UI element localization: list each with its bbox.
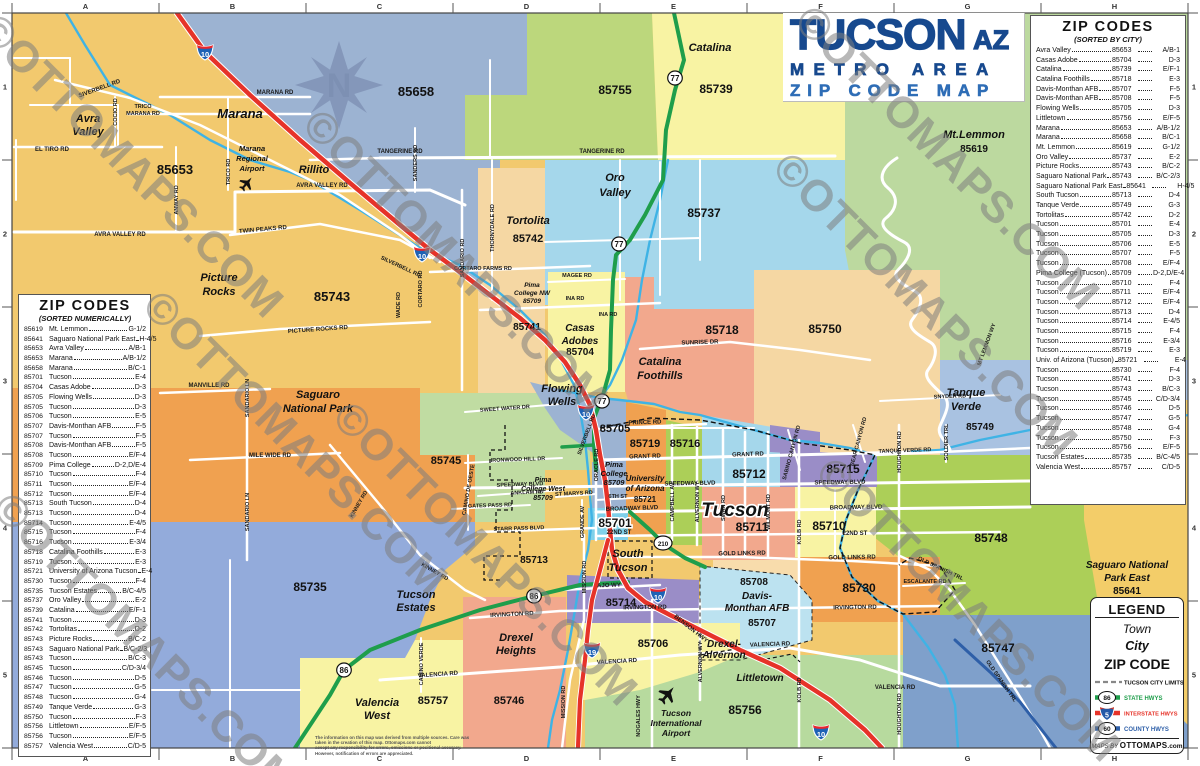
svg-text:10: 10 — [201, 50, 209, 59]
svg-text:Valley: Valley — [599, 187, 631, 199]
svg-text:77: 77 — [671, 74, 680, 83]
svg-text:10: 10 — [654, 593, 662, 602]
svg-text:GOLD LINKS RD: GOLD LINKS RD — [718, 551, 766, 558]
svg-text:MISSION RD: MISSION RD — [561, 686, 567, 719]
svg-text:E: E — [671, 754, 676, 763]
svg-text:C: C — [377, 2, 383, 11]
svg-text:MARANA RD: MARANA RD — [257, 90, 294, 96]
svg-text:3: 3 — [3, 377, 7, 386]
svg-text:Casas: Casas — [565, 323, 595, 334]
svg-text:85730: 85730 — [842, 581, 876, 595]
svg-text:F: F — [818, 754, 823, 763]
svg-text:85749: 85749 — [966, 422, 994, 433]
svg-text:D: D — [524, 754, 530, 763]
svg-text:Airport: Airport — [661, 728, 692, 738]
svg-text:AJO WY: AJO WY — [597, 583, 621, 590]
svg-text:86: 86 — [1103, 695, 1111, 702]
svg-text:H: H — [1112, 2, 1117, 11]
svg-text:SNYDER RD: SNYDER RD — [934, 393, 967, 400]
svg-text:85743: 85743 — [314, 289, 350, 304]
svg-text:85706: 85706 — [638, 638, 669, 650]
svg-text:HOUGHTON RD: HOUGHTON RD — [897, 431, 903, 472]
svg-text:Marana: Marana — [239, 144, 265, 153]
svg-text:85641: 85641 — [1113, 586, 1141, 597]
svg-text:85742: 85742 — [513, 233, 544, 245]
svg-text:ORACLE RD: ORACLE RD — [594, 449, 600, 482]
svg-text:STATE HWYS: STATE HWYS — [1124, 696, 1162, 702]
svg-text:Alvernon: Alvernon — [701, 650, 745, 661]
svg-text:College: College — [600, 469, 627, 478]
svg-text:MAGEE RD: MAGEE RD — [562, 273, 592, 279]
svg-text:ANKLAM RD: ANKLAM RD — [510, 489, 544, 496]
svg-text:85719: 85719 — [630, 438, 661, 450]
svg-text:Verde: Verde — [951, 401, 981, 413]
svg-text:85701: 85701 — [598, 516, 632, 530]
svg-text:ALVERNON WY: ALVERNON WY — [695, 481, 701, 522]
svg-text:SOLDIER TRL: SOLDIER TRL — [944, 423, 950, 460]
svg-text:N: N — [327, 67, 352, 105]
svg-text:85709: 85709 — [604, 478, 626, 487]
svg-text:210: 210 — [658, 541, 669, 548]
svg-text:85746: 85746 — [494, 695, 525, 707]
svg-text:THORNYDALE RD: THORNYDALE RD — [490, 204, 496, 252]
svg-text:of Arizona: of Arizona — [626, 484, 665, 493]
svg-text:2: 2 — [3, 230, 7, 239]
svg-text:Saguaro National: Saguaro National — [1086, 560, 1168, 571]
svg-text:University: University — [626, 474, 665, 483]
svg-text:South: South — [612, 548, 643, 560]
svg-text:SANDARIO LN: SANDARIO LN — [245, 493, 251, 531]
svg-text:AVRA VALLEY RD: AVRA VALLEY RD — [94, 232, 146, 238]
svg-text:SANDERS RD: SANDERS RD — [413, 145, 419, 181]
svg-text:SWAN RD: SWAN RD — [721, 495, 727, 521]
svg-text:85658: 85658 — [398, 84, 434, 99]
svg-text:85745: 85745 — [431, 455, 462, 467]
svg-text:E: E — [671, 2, 676, 11]
svg-text:85735: 85735 — [293, 580, 327, 594]
svg-text:Monthan AFB: Monthan AFB — [725, 603, 790, 614]
svg-text:CAMINO VERDE: CAMINO VERDE — [419, 642, 425, 685]
svg-text:Tortolita: Tortolita — [506, 215, 550, 227]
svg-text:85750: 85750 — [808, 322, 842, 336]
svg-text:Catalina: Catalina — [639, 356, 682, 368]
svg-text:6TH ST: 6TH ST — [609, 494, 629, 500]
svg-text:77: 77 — [615, 240, 624, 249]
svg-text:Regional: Regional — [236, 154, 269, 163]
svg-text:EL TIRO RD: EL TIRO RD — [35, 147, 70, 153]
svg-text:Pima: Pima — [524, 282, 540, 289]
svg-text:85739: 85739 — [699, 82, 733, 96]
svg-text:85712: 85712 — [732, 467, 766, 481]
svg-text:GRANT RD: GRANT RD — [732, 451, 765, 458]
svg-text:Saguaro: Saguaro — [296, 389, 340, 401]
svg-text:D: D — [524, 2, 530, 11]
svg-text:1: 1 — [1192, 83, 1196, 92]
svg-text:85757: 85757 — [418, 695, 449, 707]
svg-text:5: 5 — [3, 671, 7, 680]
svg-text:GRANT RD: GRANT RD — [629, 453, 662, 460]
svg-text:INA RD: INA RD — [566, 296, 585, 302]
svg-text:85707: 85707 — [748, 618, 776, 629]
svg-text:GRANDE AV: GRANDE AV — [580, 505, 586, 538]
svg-text:85716: 85716 — [670, 438, 701, 450]
svg-text:85737: 85737 — [687, 206, 721, 220]
svg-text:85711: 85711 — [736, 520, 769, 534]
svg-text:Tucson: Tucson — [701, 500, 768, 521]
svg-text:TRICO RD: TRICO RD — [226, 159, 232, 186]
svg-text:VALENCIA RD: VALENCIA RD — [875, 685, 916, 691]
svg-text:2: 2 — [1192, 230, 1196, 239]
svg-text:Tucson: Tucson — [609, 562, 648, 574]
svg-text:Tucson: Tucson — [661, 708, 691, 718]
svg-text:G: G — [965, 2, 971, 11]
svg-text:ALVERNON WY: ALVERNON WY — [698, 641, 704, 682]
svg-text:Marana: Marana — [217, 106, 263, 121]
svg-text:85756: 85756 — [728, 703, 762, 717]
svg-text:85709: 85709 — [533, 495, 553, 502]
svg-text:WILMONT RD: WILMONT RD — [766, 494, 772, 530]
svg-text:1: 1 — [3, 83, 7, 92]
svg-text:85705: 85705 — [600, 423, 631, 435]
svg-text:KOLB RD: KOLB RD — [797, 677, 803, 702]
svg-text:10: 10 — [817, 730, 825, 739]
svg-text:85710: 85710 — [812, 519, 846, 533]
svg-text:MISSION RD: MISSION RD — [582, 561, 588, 594]
svg-text:INA RD: INA RD — [599, 312, 618, 318]
svg-text:Park East: Park East — [1104, 573, 1150, 584]
svg-text:COUNTY HWYS: COUNTY HWYS — [1124, 727, 1169, 733]
svg-text:H: H — [1112, 754, 1117, 763]
svg-text:Valencia: Valencia — [355, 697, 399, 709]
svg-text:IRVINGTON RD: IRVINGTON RD — [833, 605, 877, 612]
svg-text:West: West — [364, 710, 391, 722]
svg-text:85755: 85755 — [598, 83, 632, 97]
svg-text:CORTARO RD: CORTARO RD — [418, 271, 424, 308]
svg-text:Davis-: Davis- — [742, 591, 773, 602]
svg-text:MARANA RD: MARANA RD — [126, 111, 160, 117]
svg-text:Foothills: Foothills — [637, 370, 683, 382]
svg-text:Pima: Pima — [605, 460, 623, 469]
svg-text:B: B — [230, 2, 236, 11]
svg-text:INTERSTATE HWYS: INTERSTATE HWYS — [1124, 712, 1178, 718]
svg-text:TUCSON CITY LIMITS: TUCSON CITY LIMITS — [1124, 681, 1184, 687]
svg-text:HOUGHTON RD: HOUGHTON RD — [897, 693, 903, 734]
svg-text:PRINCE RD: PRINCE RD — [628, 419, 662, 426]
svg-text:Littletown: Littletown — [736, 673, 783, 684]
svg-text:G: G — [965, 754, 971, 763]
svg-text:5: 5 — [1192, 671, 1196, 680]
svg-text:NOGALES HWY: NOGALES HWY — [636, 695, 642, 737]
svg-text:Airport: Airport — [239, 164, 266, 173]
svg-text:85708: 85708 — [740, 577, 768, 588]
svg-text:Heights: Heights — [496, 645, 536, 657]
svg-text:85718: 85718 — [705, 323, 739, 337]
svg-text:KOLB RD: KOLB RD — [797, 519, 803, 544]
svg-text:CAMPBELL AV: CAMPBELL AV — [670, 482, 676, 521]
svg-text:Estates: Estates — [396, 602, 435, 614]
svg-text:International: International — [650, 718, 702, 728]
svg-text:86: 86 — [340, 666, 349, 675]
svg-text:85721: 85721 — [634, 495, 657, 504]
svg-text:WADE RD: WADE RD — [396, 292, 402, 318]
svg-text:TRICO: TRICO — [134, 104, 152, 110]
svg-text:Catalina: Catalina — [689, 42, 732, 54]
svg-text:85748: 85748 — [974, 531, 1008, 545]
svg-text:TANGERINE RD: TANGERINE RD — [579, 149, 625, 155]
svg-text:A: A — [83, 2, 89, 11]
svg-text:Drexel-: Drexel- — [707, 639, 742, 650]
svg-text:3: 3 — [1192, 377, 1196, 386]
svg-text:22ND ST: 22ND ST — [607, 530, 632, 536]
svg-text:Oro: Oro — [605, 172, 625, 184]
svg-text:IRVINGTON RD: IRVINGTON RD — [623, 605, 667, 612]
svg-text:GOLD LINKS RD: GOLD LINKS RD — [828, 555, 876, 562]
